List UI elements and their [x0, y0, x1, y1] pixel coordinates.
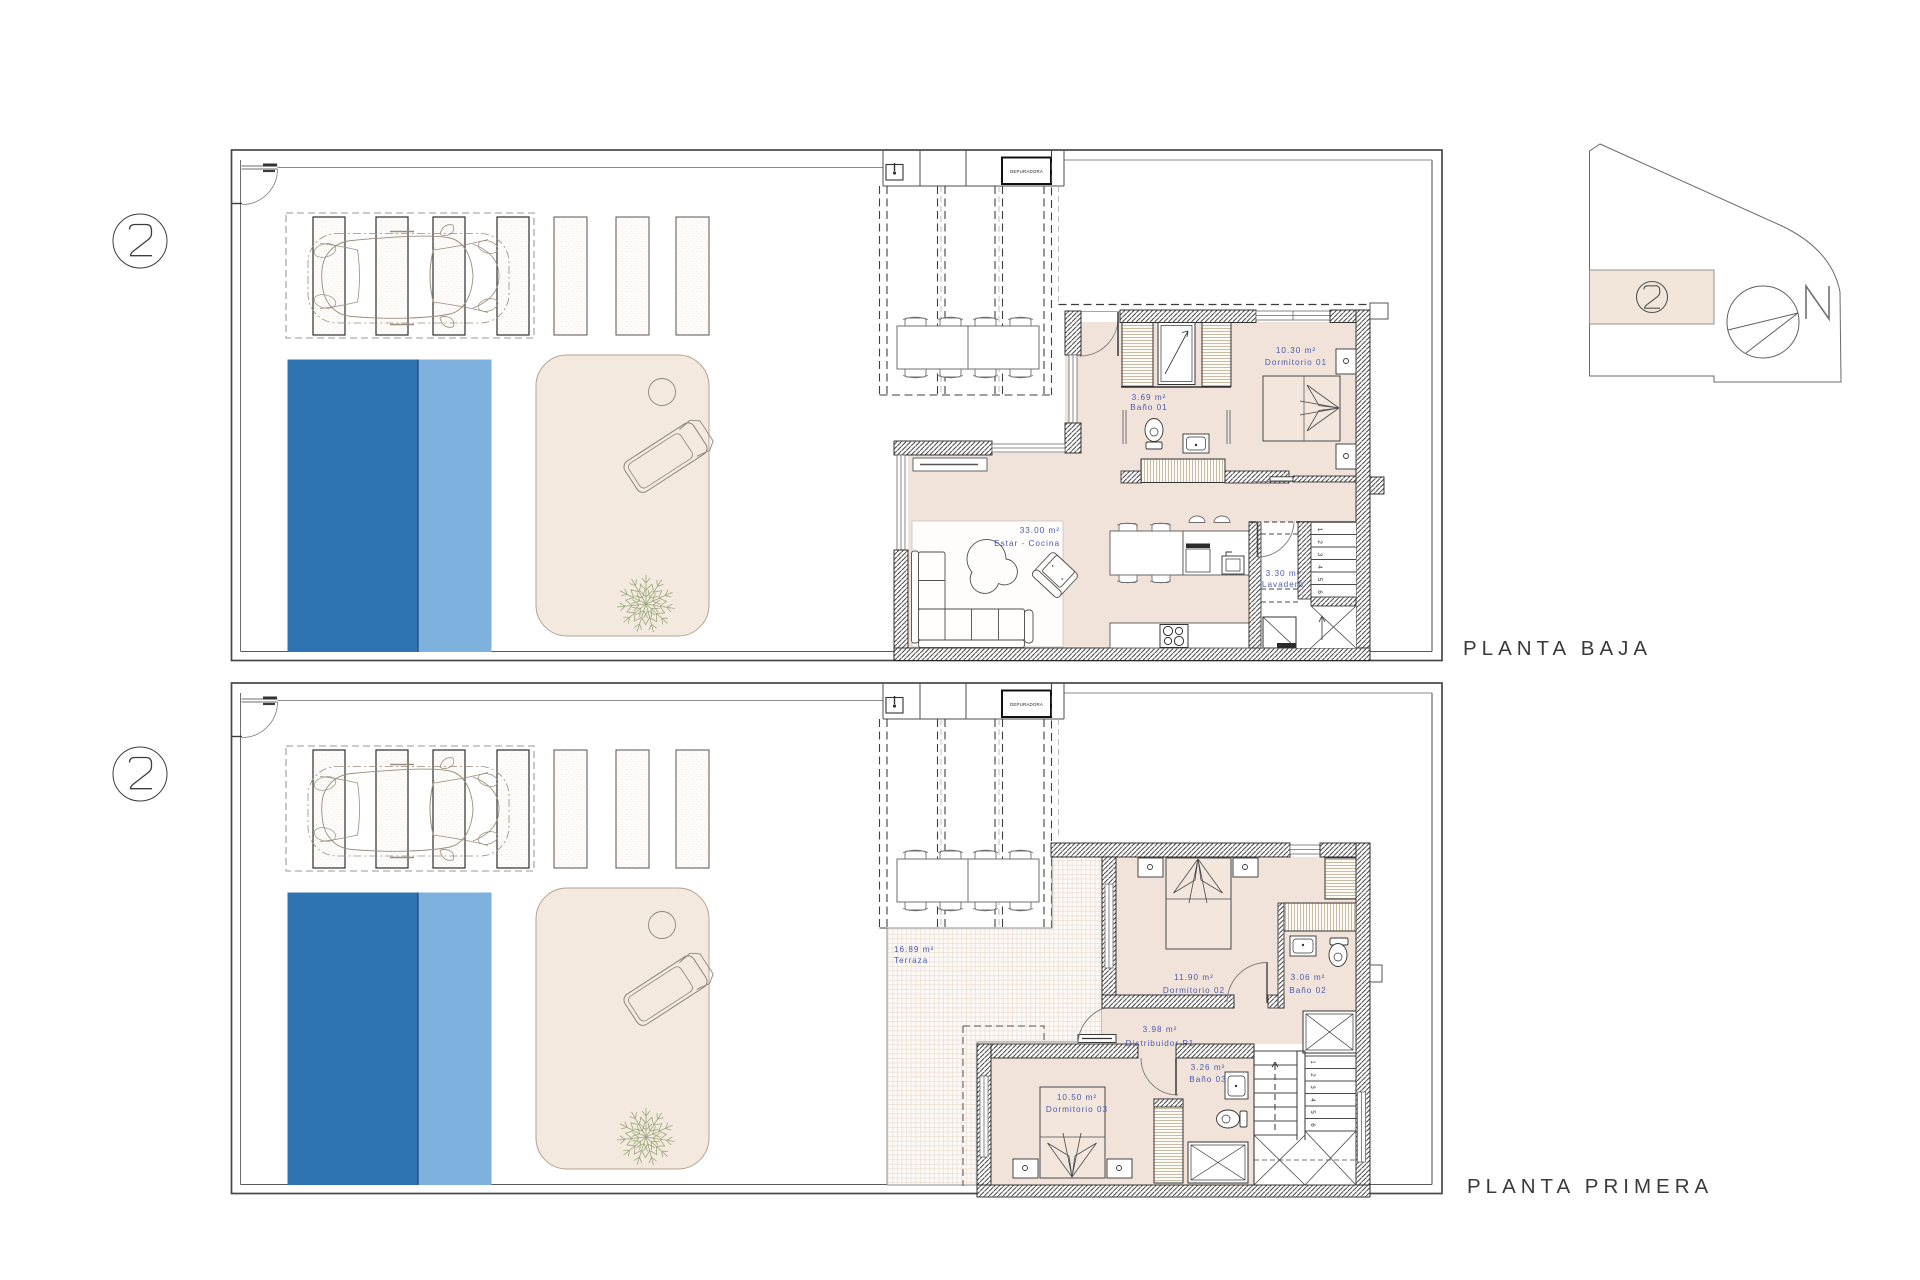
svg-text:10.50 m²: 10.50 m²: [1057, 1093, 1097, 1102]
svg-text:Baño 03: Baño 03: [1189, 1075, 1227, 1084]
svg-text:10.30 m²: 10.30 m²: [1276, 346, 1316, 355]
svg-text:11.90 m²: 11.90 m²: [1174, 973, 1214, 982]
svg-text:1: 1: [1316, 528, 1323, 532]
svg-text:3.98 m²: 3.98 m²: [1143, 1025, 1178, 1034]
svg-text:2: 2: [1316, 540, 1323, 544]
svg-text:4: 4: [1316, 565, 1323, 569]
svg-text:Estar - Cocina: Estar - Cocina: [994, 539, 1060, 548]
svg-text:6: 6: [1316, 590, 1323, 594]
svg-text:3.69 m²: 3.69 m²: [1132, 393, 1167, 402]
svg-text:3: 3: [1316, 553, 1323, 557]
svg-text:3.06 m²: 3.06 m²: [1291, 973, 1326, 982]
svg-text:Terraza: Terraza: [894, 956, 928, 965]
svg-text:Baño 02: Baño 02: [1289, 986, 1327, 995]
svg-text:3.26 m²: 3.26 m²: [1191, 1063, 1226, 1072]
svg-text:Distribuidor P1: Distribuidor P1: [1126, 1039, 1195, 1048]
svg-text:Dormitorio 03: Dormitorio 03: [1046, 1105, 1108, 1114]
svg-text:33.00 m²: 33.00 m²: [1020, 526, 1060, 535]
svg-text:Dormitorio 02: Dormitorio 02: [1163, 986, 1225, 995]
svg-text:16.89 m²: 16.89 m²: [894, 945, 934, 954]
svg-text:Lavadero: Lavadero: [1262, 580, 1304, 589]
svg-text:PLANTA PRIMERA: PLANTA PRIMERA: [1467, 1175, 1713, 1198]
svg-text:Baño 01: Baño 01: [1130, 403, 1168, 412]
svg-text:Dormitorio 01: Dormitorio 01: [1265, 358, 1327, 367]
svg-text:3.30 m²: 3.30 m²: [1266, 569, 1301, 578]
svg-text:PLANTA BAJA: PLANTA BAJA: [1463, 637, 1652, 660]
svg-text:5: 5: [1316, 578, 1323, 582]
